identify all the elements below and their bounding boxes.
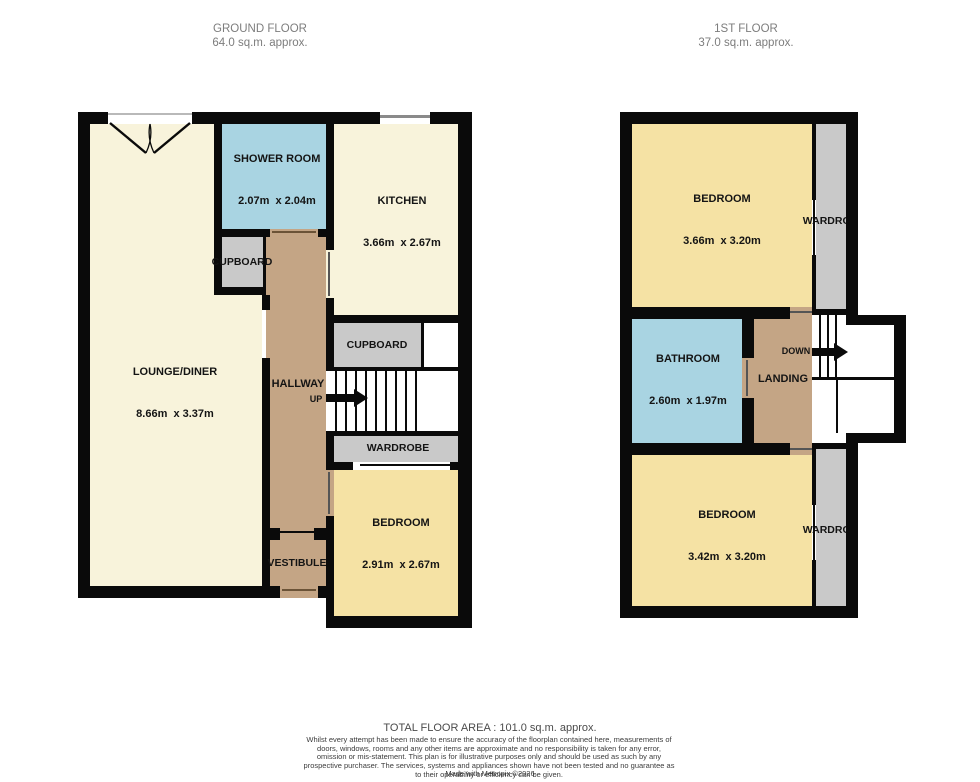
wardrobe-front-slider-line xyxy=(813,200,815,255)
wall xyxy=(326,315,472,323)
wall xyxy=(812,560,816,606)
wall xyxy=(78,586,280,598)
label-vestibule: VESTIBULE xyxy=(268,556,327,570)
wall xyxy=(812,124,816,200)
room-dims: 3.42m x 3.20m xyxy=(688,550,766,564)
wall xyxy=(620,112,632,618)
wall xyxy=(214,287,266,295)
wall xyxy=(894,315,906,443)
wall xyxy=(326,112,334,250)
first-floor-title-name: 1ST FLOOR xyxy=(606,22,886,36)
room-name: KITCHEN xyxy=(363,194,441,208)
first-floor-title: 1ST FLOOR 37.0 sq.m. approx. xyxy=(606,22,886,50)
room-name: SHOWER ROOM xyxy=(234,152,321,166)
room-dims: 2.91m x 2.67m xyxy=(362,558,440,572)
wall xyxy=(620,307,790,319)
french-doors-icon xyxy=(100,110,200,170)
room-dims: 2.07m x 2.04m xyxy=(234,194,321,208)
label-kitchen: KITCHEN 3.66m x 2.67m xyxy=(363,166,441,278)
stair-landing-gf xyxy=(424,371,458,431)
label-bedroom-front: BEDROOM 3.66m x 3.20m xyxy=(683,164,761,276)
wall xyxy=(326,616,472,628)
up-arrow-icon xyxy=(326,394,354,402)
front-door-line xyxy=(282,589,316,591)
front-door-gap xyxy=(280,586,318,598)
bedroom-back-door-line xyxy=(790,448,812,450)
stair-nook xyxy=(424,323,458,367)
wall xyxy=(620,443,790,455)
ground-floor-title-area: 64.0 sq.m. approx. xyxy=(120,36,400,50)
bedroom-front-door-line xyxy=(790,311,812,313)
wall xyxy=(326,323,334,371)
label-bedroom-gf: BEDROOM 2.91m x 2.67m xyxy=(362,488,440,600)
wall xyxy=(326,367,458,371)
down-arrow-icon xyxy=(812,348,834,356)
stairwell-divider-line xyxy=(836,380,838,433)
label-cupboard-stairs: CUPBOARD xyxy=(347,338,408,352)
wall xyxy=(846,112,858,323)
bedroom-front-door-gap xyxy=(790,307,812,319)
wall xyxy=(620,112,858,124)
ground-floor-title-name: GROUND FLOOR xyxy=(120,22,400,36)
label-wardrobe-gf: WARDROBE xyxy=(367,441,429,455)
wardrobe-gf-slider-line xyxy=(360,464,450,466)
wall xyxy=(421,323,424,367)
stairwell-divider-line xyxy=(812,377,894,380)
kitchen-door-line xyxy=(328,252,330,296)
wall xyxy=(326,431,458,436)
label-down: DOWN xyxy=(782,346,811,356)
wall xyxy=(262,528,280,540)
room-lounge-diner-ext xyxy=(214,295,262,586)
wall xyxy=(326,516,334,628)
room-dims: 8.66m x 3.37m xyxy=(133,407,217,421)
wall xyxy=(812,449,816,505)
wall xyxy=(78,112,90,598)
label-bedroom-back: BEDROOM 3.42m x 3.20m xyxy=(688,480,766,592)
ground-floor-title: GROUND FLOOR 64.0 sq.m. approx. xyxy=(120,22,400,50)
label-cupboard-hall: CUPBOARD xyxy=(212,255,273,269)
wardrobe-back-slider-line xyxy=(813,505,815,560)
room-name: BEDROOM xyxy=(683,192,761,206)
vestibule-door-line xyxy=(280,531,314,533)
wall xyxy=(620,606,858,618)
room-name: BEDROOM xyxy=(362,516,440,530)
wall xyxy=(326,462,353,470)
bedroom-gf-door-line xyxy=(328,472,330,514)
first-floor-title-area: 37.0 sq.m. approx. xyxy=(606,36,886,50)
wall xyxy=(742,398,754,443)
wall xyxy=(458,112,472,628)
up-arrow-head-icon xyxy=(354,389,368,407)
label-bathroom: BATHROOM 2.60m x 1.97m xyxy=(649,324,727,436)
room-dims: 2.60m x 1.97m xyxy=(649,394,727,408)
label-landing: LANDING xyxy=(758,372,808,386)
total-floor-area: TOTAL FLOOR AREA : 101.0 sq.m. approx. xyxy=(0,722,980,734)
room-dims: 3.66m x 3.20m xyxy=(683,234,761,248)
wall xyxy=(812,309,848,315)
wall xyxy=(812,443,848,449)
room-name: BATHROOM xyxy=(649,352,727,366)
wall xyxy=(812,255,816,313)
wall xyxy=(450,462,472,470)
wall xyxy=(742,319,754,358)
wall xyxy=(846,433,858,618)
label-lounge-diner: LOUNGE/DINER 8.66m x 3.37m xyxy=(133,337,217,449)
room-dims: 3.66m x 2.67m xyxy=(363,236,441,250)
floorplan-page: { "titles": { "ground": {"name": "GROUND… xyxy=(0,0,980,782)
wall xyxy=(262,295,270,310)
wall xyxy=(314,528,326,540)
bathroom-door-line xyxy=(746,360,748,396)
kitchen-window xyxy=(380,115,430,118)
label-up: UP xyxy=(310,394,323,404)
down-arrow-head-icon xyxy=(834,343,848,361)
credit-text: Made with Metropix ©2026 xyxy=(0,769,980,778)
room-name: LOUNGE/DINER xyxy=(133,365,217,379)
label-shower-room: SHOWER ROOM 2.07m x 2.04m xyxy=(234,124,321,236)
room-name: BEDROOM xyxy=(688,508,766,522)
bathroom-door-gap xyxy=(742,358,754,398)
label-hallway: HALLWAY xyxy=(272,377,325,391)
wall xyxy=(846,433,906,443)
